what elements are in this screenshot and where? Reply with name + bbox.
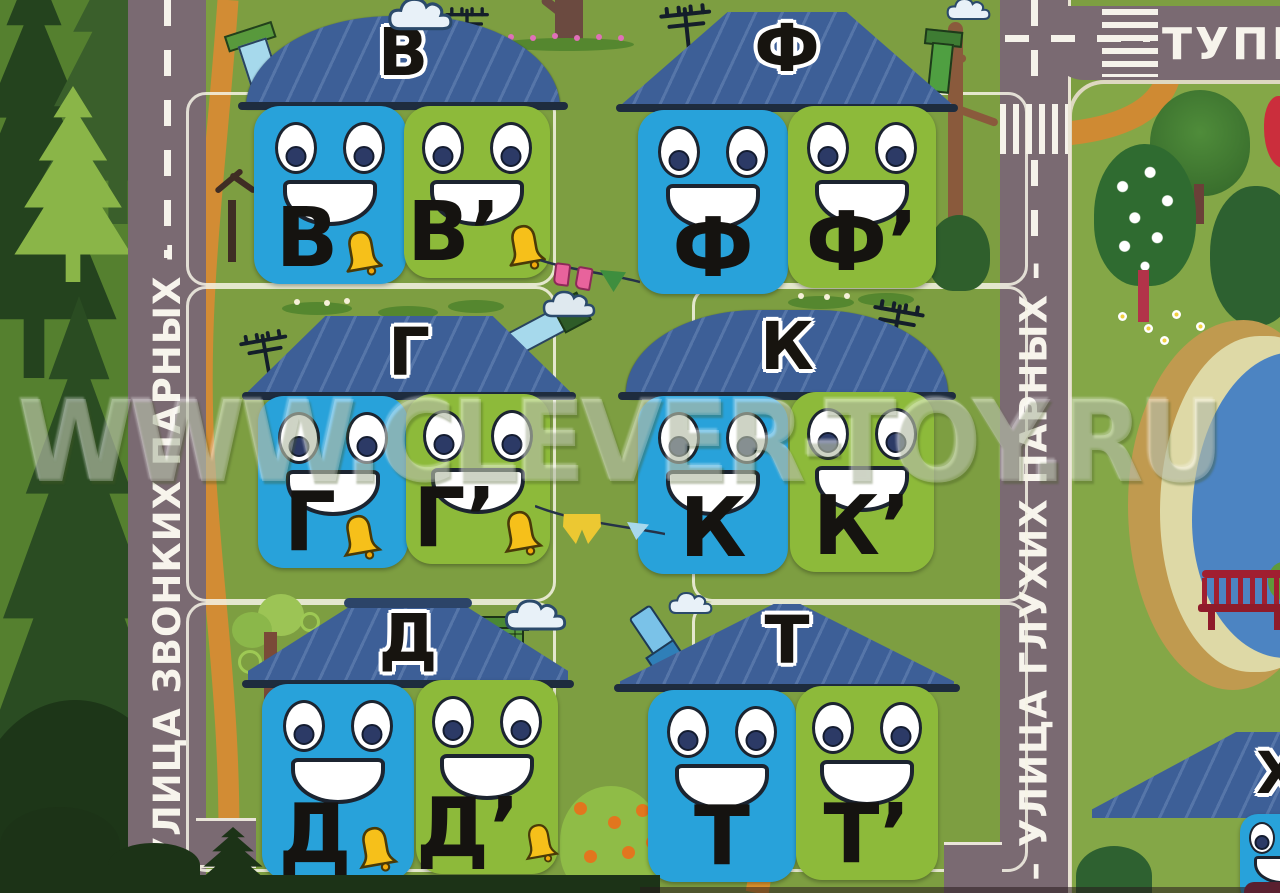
eye-icon bbox=[500, 696, 542, 748]
eye-icon bbox=[423, 410, 465, 462]
soft-sound-panel: Т’ bbox=[796, 686, 938, 880]
pupil-icon bbox=[354, 146, 375, 167]
character-eyes bbox=[658, 126, 768, 178]
eye-icon bbox=[880, 702, 922, 754]
eye-icon bbox=[490, 122, 532, 174]
soft-letter: Д’ bbox=[416, 788, 520, 870]
bottom-corner-shape bbox=[1244, 882, 1280, 893]
eye-icon bbox=[432, 696, 474, 748]
soft-sound-panel: Г’ bbox=[406, 394, 550, 564]
eye-icon bbox=[1249, 822, 1275, 854]
hard-letter: Ф bbox=[672, 208, 753, 290]
eye-icon bbox=[726, 412, 768, 464]
pupil-icon bbox=[886, 146, 907, 167]
pupil-icon bbox=[737, 150, 758, 171]
character-eyes bbox=[278, 412, 388, 464]
pupil-icon bbox=[1255, 835, 1270, 850]
letter-house-v: В В В’ bbox=[240, 16, 566, 288]
daisy-flower bbox=[1160, 336, 1169, 345]
letter-house-t: Т Т Т’ bbox=[620, 604, 954, 888]
house-roof: Г bbox=[248, 316, 570, 398]
soft-sound-panel: Ф’ bbox=[788, 106, 936, 288]
eye-icon bbox=[283, 700, 325, 752]
park-area: Х bbox=[1068, 80, 1280, 893]
hard-sound-panel: Ф bbox=[638, 110, 788, 294]
hard-sound-panel: Г bbox=[258, 396, 408, 568]
white-flowers bbox=[798, 293, 804, 299]
eye-icon bbox=[735, 706, 777, 758]
soft-letter: Г’ bbox=[413, 478, 496, 560]
white-flowers bbox=[294, 299, 300, 305]
soft-sound-panel: К’ bbox=[790, 392, 934, 572]
cloud-icon bbox=[503, 594, 575, 636]
character-eyes bbox=[283, 700, 393, 752]
eye-icon bbox=[875, 122, 917, 174]
pupil-icon bbox=[294, 724, 315, 745]
road-centerline bbox=[1031, 0, 1038, 98]
deadend-road: ТУПИ bbox=[1050, 6, 1280, 80]
bottom-edge-shadow bbox=[640, 887, 1280, 893]
bottom-forest-silhouette bbox=[0, 807, 120, 883]
daisy-flower bbox=[1196, 322, 1205, 331]
roof-ridge-cap bbox=[344, 598, 472, 608]
letter-house-d: Д Д Д’ bbox=[248, 602, 568, 886]
pupil-icon bbox=[678, 730, 699, 751]
character-eyes bbox=[807, 122, 917, 174]
park-bush bbox=[1210, 186, 1280, 326]
pupil-icon bbox=[289, 436, 310, 457]
alphabet-town-poster: – УЛИЦА ЗВОНКИХ ПАРНЫХ – – УЛИЦА ГЛУХИХ … bbox=[0, 0, 1280, 893]
road-centerline bbox=[1031, 160, 1038, 258]
eye-icon bbox=[346, 412, 388, 464]
daisy-flower bbox=[1172, 310, 1181, 319]
pupil-icon bbox=[511, 720, 532, 741]
hard-letter: Т bbox=[694, 796, 750, 878]
bench-seat bbox=[1198, 604, 1280, 612]
forest-strip bbox=[0, 0, 128, 893]
eye-icon bbox=[807, 408, 849, 460]
bench-leg bbox=[1208, 612, 1215, 630]
eye-icon bbox=[275, 122, 317, 174]
letter-house-g: Г Г Г’ bbox=[248, 316, 570, 570]
park-bush-small bbox=[1076, 846, 1152, 893]
road-centerline bbox=[164, 0, 171, 258]
bell-icon bbox=[336, 226, 388, 281]
character-eyes bbox=[422, 122, 532, 174]
pupil-icon bbox=[669, 150, 690, 171]
hard-letter: В bbox=[276, 198, 339, 280]
soft-sound-panel: Д’ bbox=[416, 680, 558, 874]
daisy-flower bbox=[1144, 324, 1153, 333]
roof-letter: К bbox=[760, 314, 814, 398]
pupil-icon bbox=[886, 432, 907, 453]
pupil-icon bbox=[669, 436, 690, 457]
pupil-icon bbox=[818, 432, 839, 453]
house-roof: К bbox=[626, 310, 948, 398]
soft-letter: Т’ bbox=[823, 794, 910, 876]
soft-letter: Ф’ bbox=[806, 202, 918, 284]
bench-slats bbox=[1202, 578, 1280, 604]
soft-letter: В’ bbox=[407, 192, 501, 274]
pupil-icon bbox=[357, 436, 378, 457]
hard-sound-panel: В bbox=[254, 106, 406, 284]
cloud-icon bbox=[384, 0, 464, 36]
pupil-icon bbox=[737, 436, 758, 457]
park-bench bbox=[1194, 570, 1280, 632]
hard-letter: К bbox=[679, 488, 746, 570]
eye-icon bbox=[278, 412, 320, 464]
hard-sound-panel: Т bbox=[648, 690, 796, 882]
orange-fruit bbox=[574, 802, 587, 815]
pupil-icon bbox=[434, 434, 455, 455]
eye-icon bbox=[807, 122, 849, 174]
roof-letter: Г bbox=[388, 320, 430, 398]
pupil-icon bbox=[433, 146, 454, 167]
park-tree-blossom bbox=[1094, 144, 1196, 286]
crosswalk-icon bbox=[1102, 9, 1158, 77]
smile-icon bbox=[1254, 856, 1280, 884]
grass-tuft bbox=[448, 300, 504, 313]
daisy-flower bbox=[1118, 312, 1127, 321]
character-eyes bbox=[658, 412, 768, 464]
eye-icon bbox=[491, 410, 533, 462]
pupil-icon bbox=[502, 434, 523, 455]
eye-icon bbox=[658, 126, 700, 178]
character-eyes bbox=[275, 122, 385, 174]
character-eyes bbox=[423, 410, 533, 462]
character-eyes bbox=[1249, 822, 1280, 854]
grass-tuft bbox=[282, 302, 352, 315]
soft-sound-panel: В’ bbox=[404, 106, 550, 278]
character-eyes bbox=[807, 408, 917, 460]
hard-letter: Г bbox=[284, 482, 336, 564]
street-name-voiced: – УЛИЦА ЗВОНКИХ ПАРНЫХ – bbox=[146, 242, 189, 893]
pupil-icon bbox=[443, 720, 464, 741]
pupil-icon bbox=[823, 726, 844, 747]
pink-sock bbox=[553, 262, 572, 287]
partial-house-letter: Х bbox=[1256, 744, 1280, 802]
eye-icon bbox=[875, 408, 917, 460]
character-eyes bbox=[432, 696, 542, 748]
bell-icon bbox=[334, 510, 386, 565]
clothesline bbox=[540, 252, 640, 302]
eye-icon bbox=[726, 126, 768, 178]
character-eyes bbox=[667, 706, 777, 758]
bench-leg bbox=[1274, 612, 1280, 630]
eye-icon bbox=[422, 122, 464, 174]
letter-house-f: Ф Ф Ф’ bbox=[622, 12, 952, 292]
partial-house-roof bbox=[1092, 732, 1280, 818]
house-roof: Ф bbox=[622, 12, 952, 110]
red-playground-shape bbox=[1264, 96, 1280, 168]
pupil-icon bbox=[891, 726, 912, 747]
tree-trunk bbox=[1138, 270, 1149, 322]
eye-icon bbox=[351, 700, 393, 752]
eye-icon bbox=[812, 702, 854, 754]
cloud-icon bbox=[668, 588, 718, 618]
hard-sound-panel: Д bbox=[262, 684, 414, 880]
pupil-icon bbox=[818, 146, 839, 167]
bare-tree bbox=[228, 200, 236, 262]
clothesline bbox=[535, 496, 665, 554]
pupil-icon bbox=[746, 730, 767, 751]
pupil-icon bbox=[362, 724, 383, 745]
roof-letter: Д bbox=[379, 606, 438, 686]
pupil-icon bbox=[286, 146, 307, 167]
bottom-dark-strip bbox=[0, 875, 660, 893]
roof-letter: Т bbox=[764, 608, 809, 690]
soft-letter: К’ bbox=[813, 486, 911, 568]
letter-house-k: К К К’ bbox=[622, 310, 952, 576]
bench-backrest bbox=[1202, 570, 1280, 578]
eye-icon bbox=[343, 122, 385, 174]
pupil-icon bbox=[501, 146, 522, 167]
roof-letter: Ф bbox=[754, 16, 819, 110]
cloud-icon bbox=[945, 0, 997, 24]
eye-icon bbox=[667, 706, 709, 758]
eye-icon bbox=[658, 412, 700, 464]
bell-icon bbox=[518, 816, 562, 869]
deadend-street-name: ТУПИ bbox=[1162, 19, 1280, 70]
bell-icon bbox=[350, 822, 402, 877]
hard-letter: Д bbox=[278, 794, 351, 876]
character-eyes bbox=[812, 702, 922, 754]
